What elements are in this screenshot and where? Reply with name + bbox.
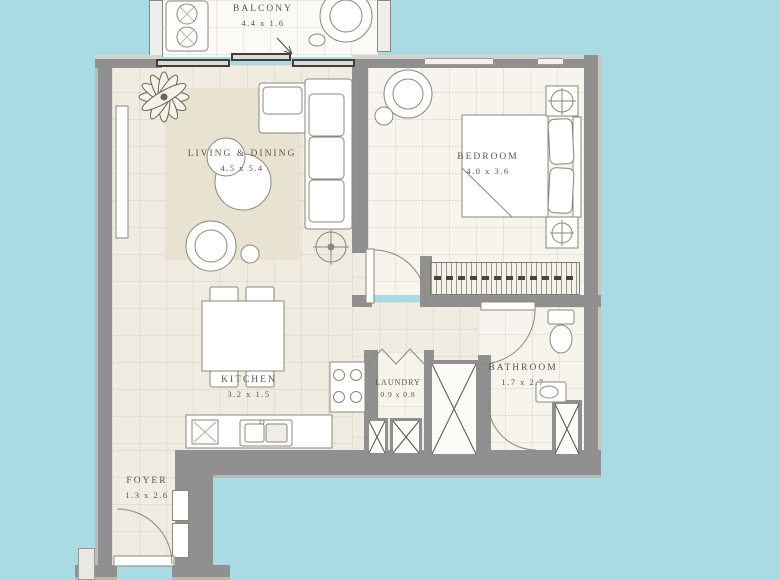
living-dining-dims: 4.5 x 5.4 xyxy=(172,164,312,173)
label-laundry: LAUNDRY 0.9 x 0.8 xyxy=(338,379,458,399)
balcony-name: BALCONY xyxy=(193,5,333,15)
foyer-dims: 1.3 x 2.6 xyxy=(87,491,207,500)
bedroom-name: BEDROOM xyxy=(418,153,558,163)
foyer-closet-panel-2 xyxy=(172,523,189,558)
balcony-left-wall xyxy=(149,0,163,57)
wall-right xyxy=(584,55,601,478)
label-balcony: BALCONY 4.4 x 1.6 xyxy=(193,5,333,27)
bedroom-window xyxy=(425,58,493,65)
balcony-dims: 4.4 x 1.6 xyxy=(193,19,333,28)
foyer-wall-cap xyxy=(78,548,95,580)
wall-living-bedroom xyxy=(352,63,368,253)
living-rug xyxy=(165,88,300,260)
living-dining-name: LIVING & DINING xyxy=(172,150,312,160)
sliding-door-panel-2 xyxy=(231,53,291,61)
shaft-bathroom xyxy=(552,400,582,458)
foyer-floor xyxy=(112,450,175,565)
label-bedroom: BEDROOM 4.0 x 3.6 xyxy=(418,153,558,175)
label-foyer: FOYER 1.3 x 2.6 xyxy=(87,477,207,499)
bedroom-dims: 4.0 x 3.6 xyxy=(418,167,558,176)
laundry-dims: 0.9 x 0.8 xyxy=(338,391,458,399)
bedroom-doorway-floor xyxy=(352,250,368,295)
label-bathroom: BATHROOM 1.7 x 2.7 xyxy=(453,364,593,386)
foyer-name: FOYER xyxy=(87,477,207,487)
laundry-name: LAUNDRY xyxy=(338,379,458,387)
sliding-door-panel-1 xyxy=(156,59,230,67)
shaft-small-2 xyxy=(390,418,422,456)
label-kitchen: KITCHEN 3.2 x 1.5 xyxy=(179,376,319,398)
balcony-right-wall xyxy=(377,0,391,52)
wardrobe-rail xyxy=(434,276,576,280)
kitchen-name: KITCHEN xyxy=(179,376,319,386)
sliding-door-panel-3 xyxy=(292,59,355,67)
wall-foyer-bottom-right xyxy=(172,565,230,580)
label-living-dining: LIVING & DINING 4.5 x 5.4 xyxy=(172,150,312,172)
bathroom-dims: 1.7 x 2.7 xyxy=(453,378,593,387)
wardrobe xyxy=(430,262,580,295)
shaft-small-1 xyxy=(366,418,388,456)
bathroom-name: BATHROOM xyxy=(453,364,593,374)
kitchen-dims: 3.2 x 1.5 xyxy=(179,390,319,399)
bedroom-floor xyxy=(368,65,584,295)
bedroom-window-2 xyxy=(538,58,563,65)
floor-plan: BALCONY 4.4 x 1.6 LIVING & DINING 4.5 x … xyxy=(0,0,780,580)
wall-bedroom-south-left xyxy=(352,295,372,307)
wall-bedroom-south-right xyxy=(424,295,601,307)
wall-top-left xyxy=(95,55,162,68)
wall-bottom-main xyxy=(175,450,601,478)
